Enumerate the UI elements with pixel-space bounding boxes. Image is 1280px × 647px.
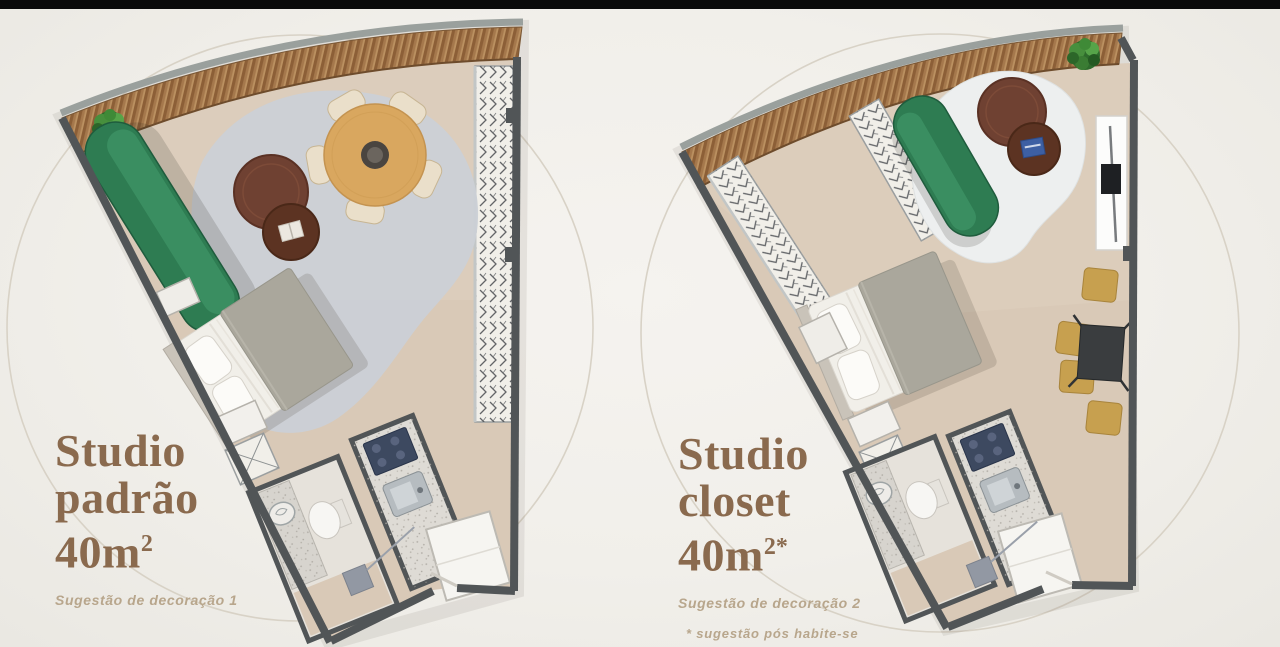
blue-book-decor — [1021, 137, 1046, 158]
dining-chair — [1081, 267, 1118, 302]
right-wall — [1132, 60, 1134, 586]
title-area: 40m2* — [678, 524, 861, 578]
plan-label-studio-padrao: Studio padrão 40m2 Sugestão de decoração… — [55, 427, 238, 608]
plan-subtitle: Sugestão de decoração 2 — [678, 595, 861, 611]
area-superscript: 2 — [141, 531, 153, 557]
plan-subtitle: Sugestão de decoração 1 — [55, 592, 238, 608]
title-line-1: Studio — [55, 427, 238, 474]
plan-footnote: * sugestão pós habite-se — [686, 626, 861, 641]
title-line-2: closet — [678, 477, 861, 524]
bottom-wall — [457, 588, 515, 591]
title-line-1: Studio — [678, 430, 861, 477]
dining-chair — [1085, 400, 1122, 435]
title-area: 40m2 — [55, 521, 238, 575]
plan-title: Studio padrão 40m2 — [55, 427, 238, 575]
right-wall — [514, 57, 517, 591]
tv-unit — [1101, 164, 1121, 194]
wall-column — [505, 247, 515, 262]
title-line-2: padrão — [55, 474, 238, 521]
area-superscript: 2* — [764, 534, 788, 560]
wall-column — [1123, 246, 1133, 261]
bottom-wall — [1072, 585, 1133, 586]
tv-sideboard — [1096, 116, 1127, 250]
plan-title: Studio closet 40m2* — [678, 430, 861, 578]
wall-column — [506, 108, 516, 123]
floor-plan-canvas: Studio padrão 40m2 Sugestão de decoração… — [0, 0, 1280, 647]
plan-label-studio-closet: Studio closet 40m2* Sugestão de decoraçã… — [678, 430, 861, 641]
